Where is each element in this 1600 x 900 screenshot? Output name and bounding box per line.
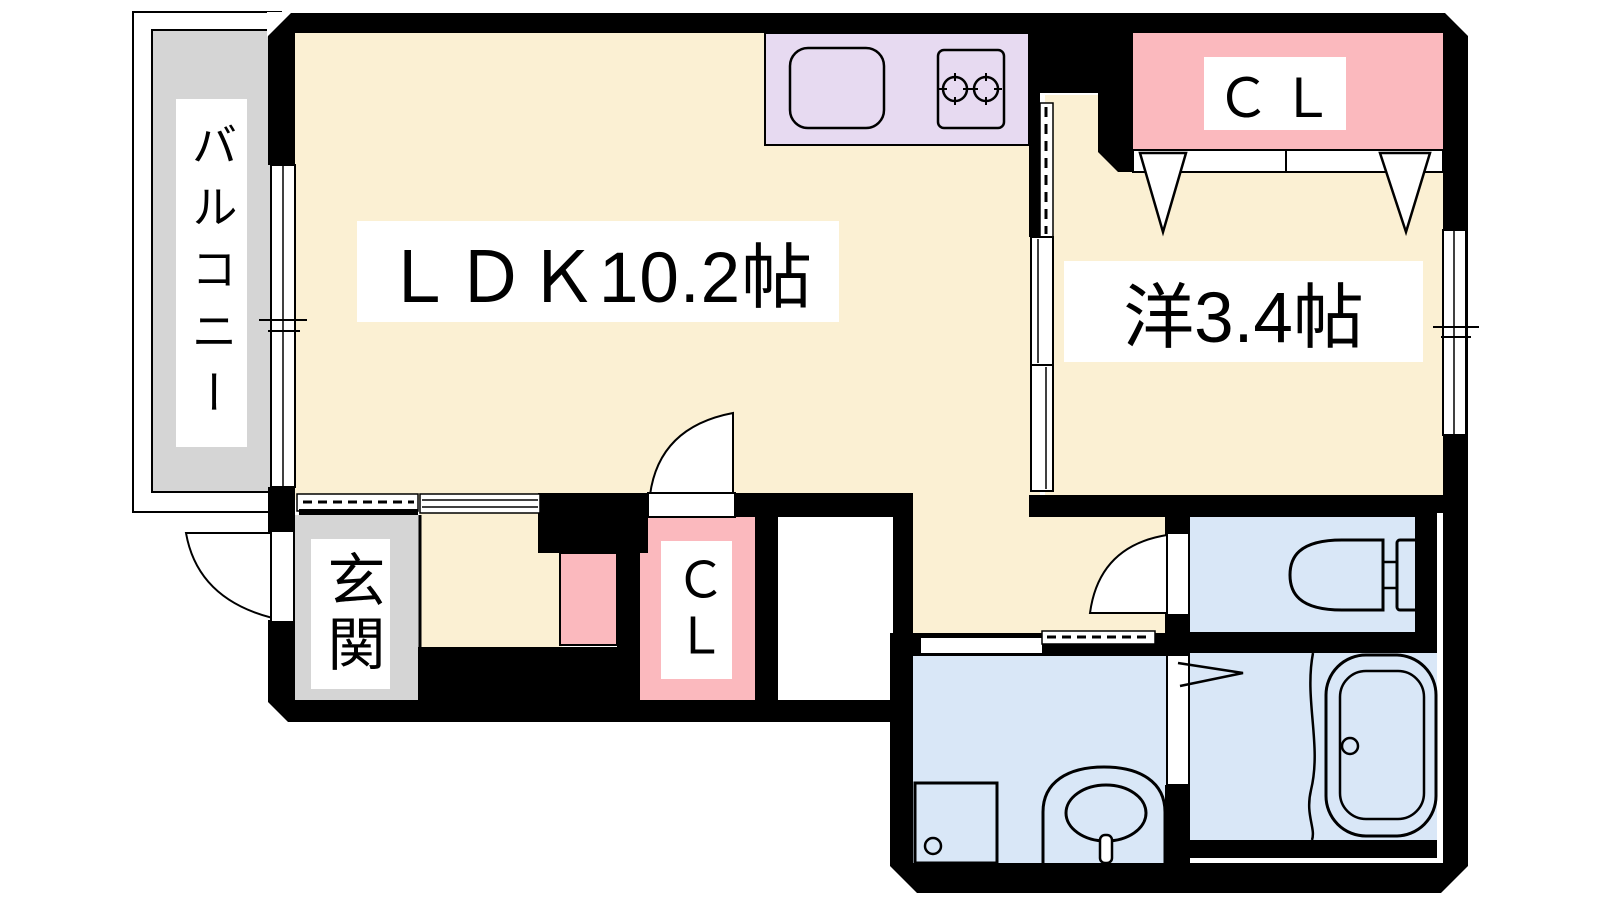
wall-washroom-left	[890, 633, 913, 893]
wall-entrance-bottom	[268, 700, 420, 722]
sliding-door-panels	[1031, 237, 1053, 491]
closet-hall-label: ＣＬ	[661, 541, 732, 679]
western-room-label: 洋3.4帖	[1064, 261, 1423, 362]
wall-partition-bar	[1029, 93, 1040, 237]
wall-toilet-left-lower	[1165, 613, 1190, 655]
balcony-label: バルコニー	[176, 99, 247, 447]
hall-opening-strip	[420, 494, 540, 513]
wall-right	[1443, 13, 1468, 893]
wall-toilet-bath-divider	[1190, 632, 1437, 653]
wall-closet-left	[617, 515, 640, 647]
toilet-room-floor	[1190, 515, 1415, 632]
shoe-storage	[560, 553, 617, 645]
wall-top	[268, 13, 1468, 33]
ldk-label: ＬＤＫ10.2帖	[357, 221, 839, 322]
entrance-step-strip	[297, 494, 418, 515]
void-space	[777, 513, 893, 702]
partition-upper-dashed	[1040, 103, 1053, 237]
wall-hall-bottom	[418, 647, 640, 722]
wall-bath-left	[1165, 785, 1190, 863]
wall-void-left	[755, 493, 778, 722]
wall-gap-bath-bottom	[1190, 858, 1437, 863]
wall-pillar	[1029, 13, 1133, 93]
wall-western-bottom	[1029, 495, 1443, 517]
closet-upper-label: ＣＬ	[1204, 57, 1346, 130]
wall-void-bottom	[757, 700, 913, 722]
wall-bath-bottom	[1190, 840, 1437, 858]
washroom-floor	[913, 654, 1167, 864]
wall-left-upper	[268, 13, 295, 165]
entrance-label: 玄関	[311, 539, 390, 689]
entrance-swing-door	[186, 531, 294, 622]
floor-plan: バルコニー ＬＤＫ10.2帖 洋3.4帖 ＣＬ ＣＬ 玄関	[0, 0, 1600, 900]
wall-bottom	[890, 863, 1468, 893]
wall-left-mid	[268, 487, 295, 535]
wall-gap-right	[1437, 513, 1443, 863]
